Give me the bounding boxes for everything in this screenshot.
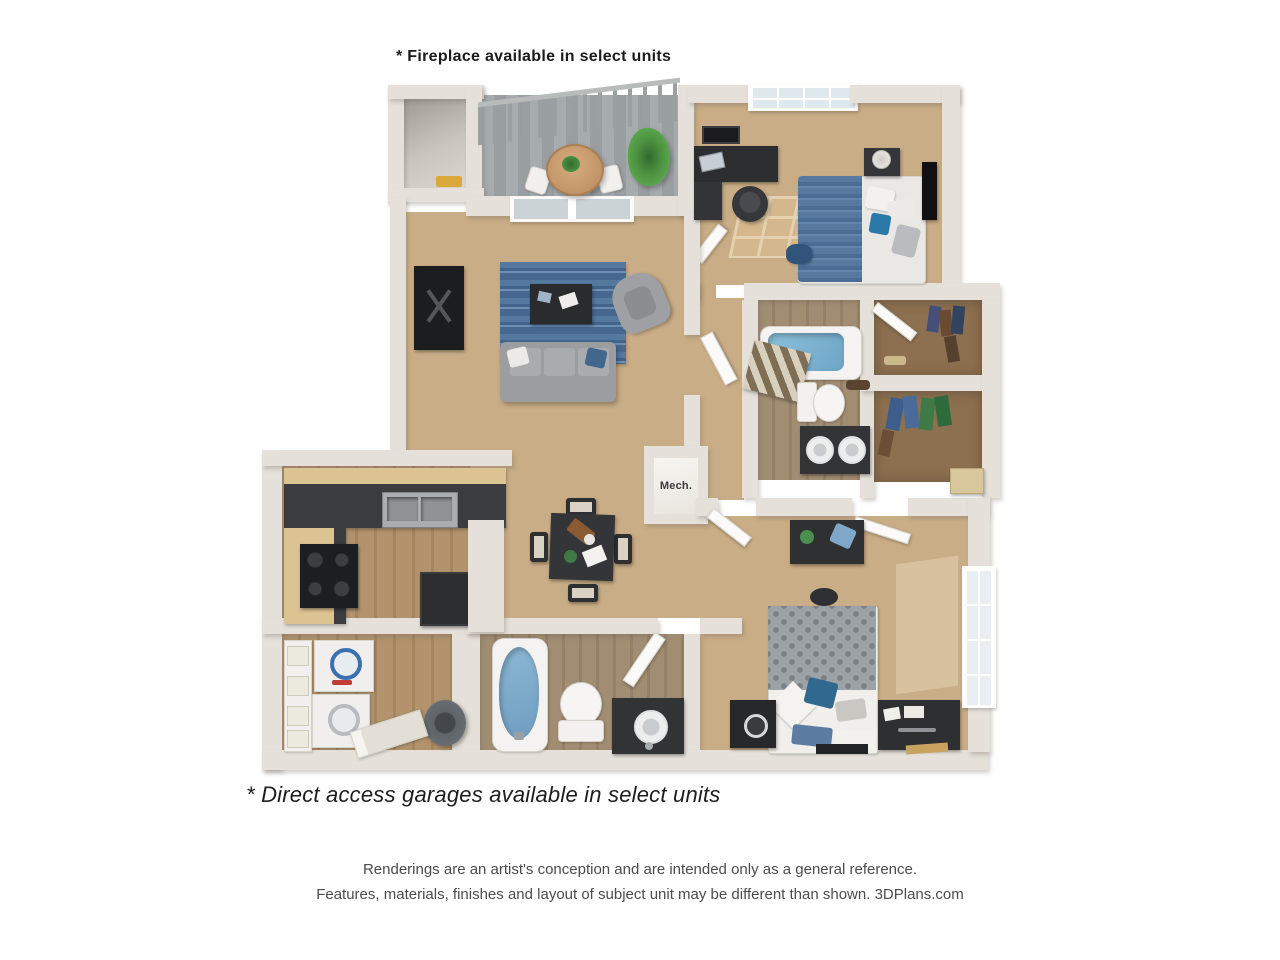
wall-bed2-east <box>942 85 960 300</box>
master-desk-paper-2 <box>904 706 924 718</box>
closet1-clothes-3 <box>951 306 965 335</box>
master-sunlight-patch <box>896 556 958 695</box>
bathtub1-faucet <box>514 732 524 740</box>
dining-chair-left-cushion <box>534 536 544 558</box>
master-bed-mat <box>816 744 868 754</box>
vanity1-sink <box>634 710 668 744</box>
vanity2-sink-left <box>806 436 834 464</box>
bedroom2-desk-return <box>694 182 722 220</box>
wall-closet-divider <box>860 375 988 391</box>
floorplan-rendering: * Fireplace available in select units <box>0 0 1280 960</box>
bed2-blanket <box>798 176 862 282</box>
laundry-towels-3 <box>287 706 309 726</box>
dining-chair-right <box>614 534 632 564</box>
stove <box>300 544 358 608</box>
master-dresser-plant <box>800 530 814 544</box>
bedroom2-monitor <box>702 126 740 144</box>
wall-hall-west-lower <box>684 395 700 448</box>
wall-bed2-top-left <box>688 85 750 103</box>
master-pillow-gray <box>835 698 867 722</box>
wall-bath1-east <box>684 634 700 752</box>
mech-closet: Mech. <box>654 458 698 514</box>
sofa-pillow-blue <box>584 347 607 369</box>
balcony-plant <box>628 128 670 186</box>
bedroom2-lamp <box>872 150 891 169</box>
wall-master-top-mid <box>756 498 852 516</box>
storage-room-floor <box>402 97 468 188</box>
master-window <box>962 566 996 708</box>
patio-table-plant <box>562 156 580 172</box>
refrigerator <box>420 572 472 626</box>
sliding-glass-door <box>510 196 634 222</box>
laundry-towels-2 <box>287 676 309 696</box>
wall-kitchen-east-return <box>468 520 504 632</box>
mech-label: Mech. <box>660 480 692 492</box>
storage-item <box>436 176 462 187</box>
kitchen-sink-basin-right <box>421 497 452 521</box>
disclaimer: Renderings are an artist's conception an… <box>0 857 1280 907</box>
closet2-storage-box <box>950 468 984 494</box>
wall-bath1-top-stub <box>700 618 742 634</box>
wall-balcony-east <box>678 85 694 216</box>
toilet1-tank <box>558 720 604 742</box>
wall-bath2-west <box>742 300 758 498</box>
laundry-towels-4 <box>287 730 309 748</box>
master-desk-pen-tray <box>898 728 936 732</box>
wall-balcony-door-left <box>466 196 510 216</box>
bedroom2-wall-art <box>922 162 937 220</box>
dining-plate <box>584 534 595 545</box>
dining-bowl <box>564 550 577 563</box>
wall-extension-west <box>262 450 282 770</box>
backpack <box>786 244 812 264</box>
disclaimer-line-1: Renderings are an artist's conception an… <box>0 857 1280 882</box>
bed2-pillow-blue <box>868 212 891 235</box>
washer-control <box>332 680 352 685</box>
washer-door-ring <box>330 648 362 680</box>
laundry-towels-1 <box>287 646 309 666</box>
master-dresser <box>790 520 864 564</box>
wall-bed2-bottom <box>744 283 1000 300</box>
closet2-shoes <box>846 380 870 390</box>
wall-living-west <box>390 198 406 460</box>
toilet2-bowl <box>813 384 845 422</box>
floor-plan: Mech. <box>0 0 1280 960</box>
water-heater <box>424 700 466 746</box>
bathtub1-water <box>499 647 539 739</box>
dining-chair-left <box>530 532 548 562</box>
garage-note: * Direct access garages available in sel… <box>246 782 720 808</box>
vanity1-faucet <box>645 742 653 750</box>
dining-chair-top-cushion <box>570 502 592 512</box>
disclaimer-line-2: Features, materials, finishes and layout… <box>0 882 1280 907</box>
bedroom2-window <box>748 83 858 111</box>
wall-hall-west-upper <box>684 212 700 335</box>
master-bed-hamper <box>810 588 838 606</box>
kitchen-sink-basin-left <box>387 497 418 521</box>
dining-chair-bottom <box>568 584 598 602</box>
master-speaker-ring <box>744 714 768 738</box>
wall-kitchen-top <box>262 450 512 466</box>
wall-closets-east <box>982 300 1000 498</box>
dining-chair-bottom-cushion <box>572 588 594 598</box>
sofa-cushion-2 <box>544 348 575 376</box>
vanity2-sink-right <box>838 436 866 464</box>
master-duvet <box>768 606 876 690</box>
dining-chair-right-cushion <box>618 538 628 560</box>
closet1-shoes <box>884 356 906 365</box>
office-chair <box>732 186 768 222</box>
wall-storage-left <box>388 85 404 203</box>
